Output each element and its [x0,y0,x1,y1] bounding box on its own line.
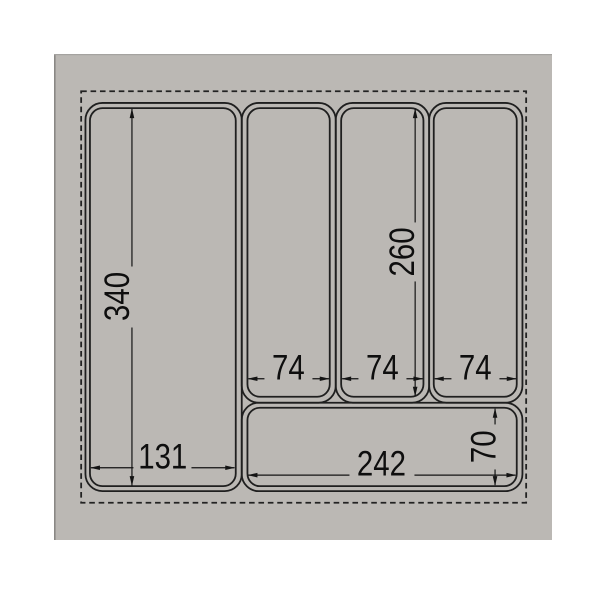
svg-text:70: 70 [464,430,503,463]
svg-text:74: 74 [459,348,492,387]
svg-text:131: 131 [138,437,187,476]
svg-text:74: 74 [272,348,305,387]
svg-text:260: 260 [383,227,422,276]
svg-text:74: 74 [366,348,399,387]
svg-text:242: 242 [357,444,406,483]
svg-text:340: 340 [98,272,137,321]
